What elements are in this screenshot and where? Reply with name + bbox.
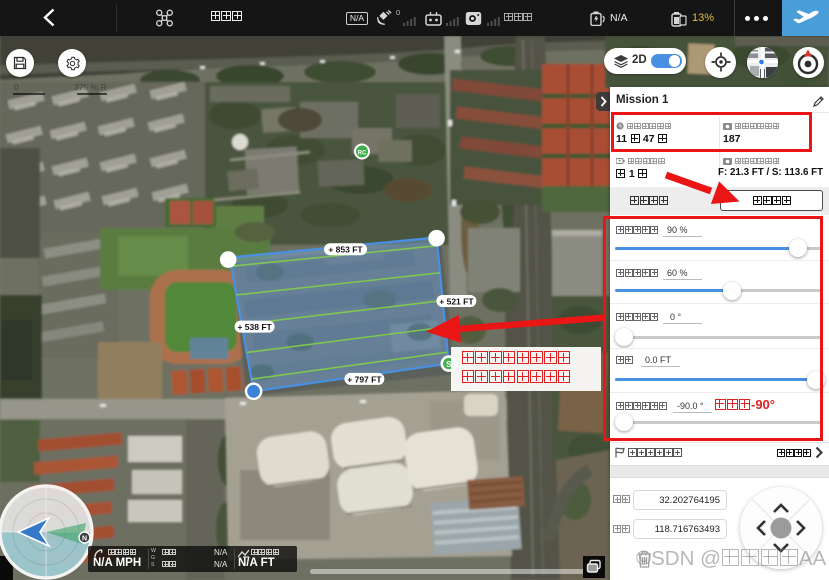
svg-text:RC: RC: [358, 151, 367, 157]
svg-text:+ 797 FT: + 797 FT: [347, 374, 382, 384]
svg-text:+ 853 FT: + 853 FT: [328, 245, 363, 255]
svg-text:N: N: [82, 535, 87, 542]
svg-text:+ 538 FT: + 538 FT: [237, 322, 272, 332]
